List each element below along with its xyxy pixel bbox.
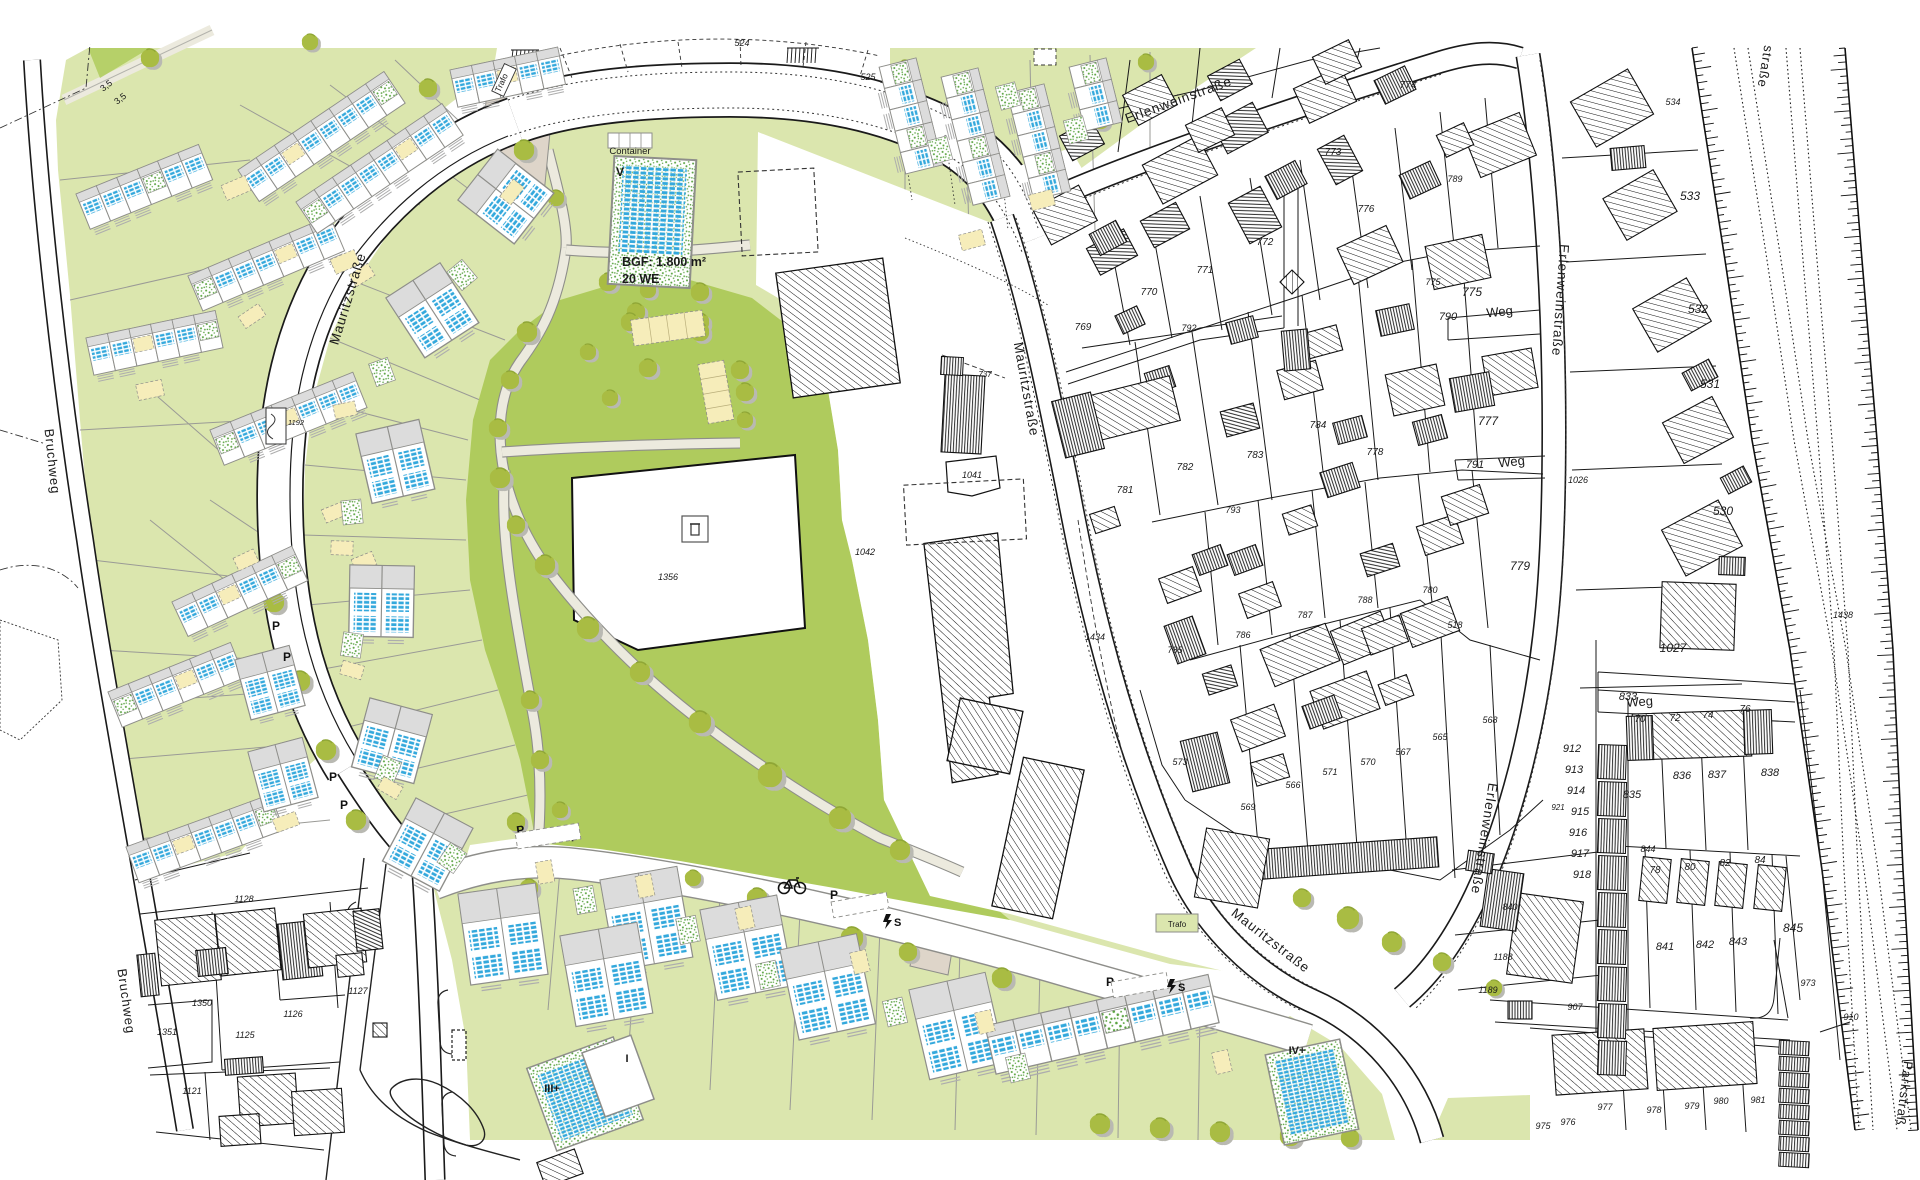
svg-text:P: P xyxy=(272,619,280,633)
svg-text:912: 912 xyxy=(1563,743,1581,755)
svg-text:776: 776 xyxy=(1358,204,1375,215)
svg-text:783: 783 xyxy=(1247,450,1264,461)
svg-text:571: 571 xyxy=(1322,767,1337,777)
svg-text:1128: 1128 xyxy=(234,894,253,904)
svg-text:915: 915 xyxy=(1571,806,1590,818)
svg-text:534: 534 xyxy=(1665,97,1680,107)
svg-text:785: 785 xyxy=(1167,645,1183,655)
svg-text:72: 72 xyxy=(1669,713,1681,724)
svg-text:S: S xyxy=(1178,982,1185,994)
svg-text:70: 70 xyxy=(1634,714,1646,725)
svg-text:771: 771 xyxy=(1197,265,1214,276)
svg-text:568: 568 xyxy=(1482,715,1497,725)
svg-text:1127: 1127 xyxy=(348,986,368,996)
svg-text:789: 789 xyxy=(1447,174,1462,184)
svg-text:1189: 1189 xyxy=(1478,985,1497,995)
svg-text:786: 786 xyxy=(1235,630,1250,640)
svg-text:976: 976 xyxy=(1560,1117,1575,1127)
svg-text:836: 836 xyxy=(1673,770,1692,782)
svg-text:840: 840 xyxy=(1502,902,1517,912)
svg-text:917: 917 xyxy=(1571,848,1590,860)
svg-text:573: 573 xyxy=(1172,757,1187,767)
svg-text:1026: 1026 xyxy=(1568,475,1588,485)
svg-text:V: V xyxy=(616,165,624,179)
svg-text:784: 784 xyxy=(1310,420,1327,431)
svg-text:918: 918 xyxy=(1573,869,1592,881)
svg-text:845: 845 xyxy=(1783,921,1803,935)
svg-text:531: 531 xyxy=(1700,377,1720,391)
svg-text:910: 910 xyxy=(1843,1012,1858,1022)
svg-text:916: 916 xyxy=(1569,827,1588,839)
svg-text:1126: 1126 xyxy=(283,1009,302,1019)
svg-text:BGF: 1.800 m²: BGF: 1.800 m² xyxy=(622,255,706,269)
svg-text:907: 907 xyxy=(1567,1002,1583,1012)
svg-text:975: 975 xyxy=(1535,1121,1551,1131)
svg-text:566: 566 xyxy=(1285,780,1300,790)
svg-text:1356: 1356 xyxy=(658,572,678,582)
svg-text:838: 838 xyxy=(1761,767,1780,779)
svg-text:1192: 1192 xyxy=(288,418,305,427)
svg-text:981: 981 xyxy=(1750,1095,1765,1105)
svg-text:842: 842 xyxy=(1696,939,1714,951)
svg-text:Weg: Weg xyxy=(1498,453,1526,471)
svg-text:III+: III+ xyxy=(544,1083,560,1095)
svg-text:778: 778 xyxy=(1367,447,1384,458)
svg-text:777: 777 xyxy=(1478,414,1499,428)
svg-text:1041: 1041 xyxy=(962,470,982,480)
svg-text:1121: 1121 xyxy=(182,1086,201,1096)
svg-text:1351: 1351 xyxy=(157,1027,177,1037)
svg-text:1027: 1027 xyxy=(1660,641,1688,655)
svg-text:78: 78 xyxy=(1649,865,1661,876)
svg-text:567: 567 xyxy=(1395,747,1411,757)
svg-text:82: 82 xyxy=(1719,858,1731,869)
svg-text:84: 84 xyxy=(1754,855,1766,866)
svg-text:P: P xyxy=(830,888,838,902)
svg-text:980: 980 xyxy=(1713,1096,1728,1106)
svg-text:524: 524 xyxy=(734,38,749,48)
svg-text:20 WE: 20 WE xyxy=(622,272,660,286)
svg-text:781: 781 xyxy=(1117,485,1134,496)
svg-text:1350: 1350 xyxy=(192,998,212,1008)
svg-text:532: 532 xyxy=(1688,302,1708,316)
svg-text:S: S xyxy=(894,917,901,929)
svg-text:775: 775 xyxy=(1425,277,1441,287)
svg-text:Weg: Weg xyxy=(1486,303,1514,321)
svg-text:1125: 1125 xyxy=(235,1030,255,1040)
svg-text:74: 74 xyxy=(1702,710,1714,721)
svg-text:530: 530 xyxy=(1713,504,1733,518)
svg-text:565: 565 xyxy=(1432,732,1448,742)
svg-text:770: 770 xyxy=(1141,287,1158,298)
svg-text:835: 835 xyxy=(1623,789,1642,801)
svg-text:837: 837 xyxy=(1708,769,1727,781)
svg-text:533: 533 xyxy=(1680,189,1700,203)
svg-text:570: 570 xyxy=(1360,757,1375,767)
svg-text:774: 774 xyxy=(1400,80,1417,91)
svg-text:737: 737 xyxy=(978,370,992,379)
svg-text:525: 525 xyxy=(860,72,876,82)
svg-text:843: 843 xyxy=(1729,936,1748,948)
svg-text:Trafo: Trafo xyxy=(1168,920,1187,929)
svg-text:769: 769 xyxy=(1075,322,1092,333)
svg-text:P: P xyxy=(329,770,337,784)
svg-text:518: 518 xyxy=(1447,620,1462,630)
svg-text:913: 913 xyxy=(1565,764,1584,776)
svg-text:P: P xyxy=(340,798,348,812)
svg-text:841: 841 xyxy=(1656,941,1674,953)
svg-text:773: 773 xyxy=(1325,147,1342,158)
svg-text:914: 914 xyxy=(1567,785,1585,797)
svg-text:76: 76 xyxy=(1739,704,1751,715)
svg-text:792: 792 xyxy=(1181,323,1196,333)
svg-text:IV+: IV+ xyxy=(1289,1045,1306,1057)
svg-text:1042: 1042 xyxy=(855,547,875,557)
svg-text:791: 791 xyxy=(1466,459,1484,471)
svg-text:921: 921 xyxy=(1551,803,1564,812)
svg-text:1438: 1438 xyxy=(1833,610,1853,620)
svg-text:790: 790 xyxy=(1439,311,1458,323)
svg-text:569: 569 xyxy=(1240,802,1255,812)
svg-text:I: I xyxy=(625,1053,628,1065)
svg-text:Container: Container xyxy=(609,146,650,157)
svg-text:P: P xyxy=(283,650,291,664)
svg-text:788: 788 xyxy=(1357,595,1372,605)
svg-text:780: 780 xyxy=(1422,585,1437,595)
svg-text:80: 80 xyxy=(1684,862,1696,873)
svg-text:779: 779 xyxy=(1510,559,1530,573)
svg-text:775: 775 xyxy=(1462,285,1482,299)
svg-text:978: 978 xyxy=(1646,1105,1661,1115)
svg-text:787: 787 xyxy=(1297,610,1313,620)
svg-text:1434: 1434 xyxy=(1085,632,1105,642)
svg-text:844: 844 xyxy=(1640,844,1655,854)
svg-text:1188: 1188 xyxy=(1493,952,1512,962)
svg-text:782: 782 xyxy=(1177,462,1194,473)
svg-text:772: 772 xyxy=(1257,237,1274,248)
svg-text:793: 793 xyxy=(1225,505,1240,515)
svg-text:977: 977 xyxy=(1597,1102,1613,1112)
svg-text:979: 979 xyxy=(1684,1101,1699,1111)
svg-text:833: 833 xyxy=(1619,691,1638,703)
svg-text:973: 973 xyxy=(1800,978,1815,988)
